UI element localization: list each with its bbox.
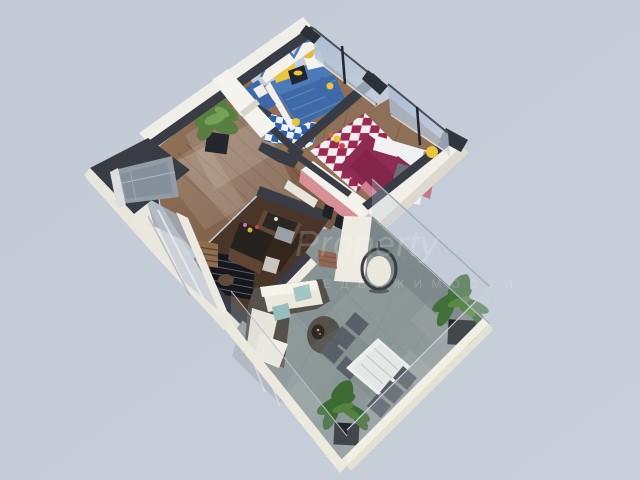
svg-text:Н Е Д В И Ж И М О С Т И: Н Е Д В И Ж И М О С Т И [305, 277, 516, 291]
svg-text:Property: Property [295, 223, 440, 264]
